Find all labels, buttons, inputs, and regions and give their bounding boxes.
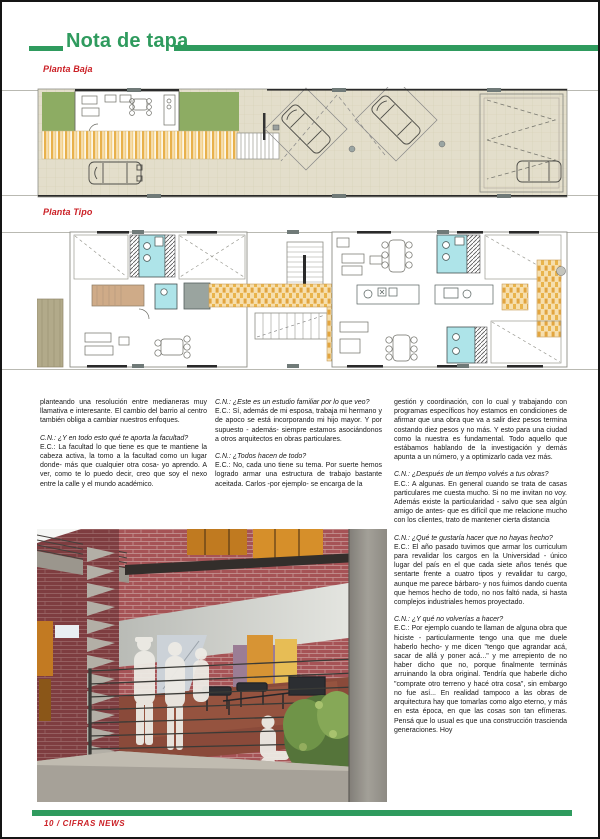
footer-rule	[32, 810, 572, 816]
planta-baja-drawing	[37, 87, 569, 200]
interview-answer: E.C.: Por ejemplo cuando te llaman de al…	[394, 624, 567, 734]
interview-question: C.N.: ¿Todos hacen de todo?	[215, 452, 382, 461]
interview-answer: gestión y coordinación, con lo cual y tr…	[394, 398, 567, 462]
interview-answer: E.C.: No, cada uno tiene su tema. Por su…	[215, 461, 382, 489]
interview-question: C.N.: ¿Y en todo esto qué te aporta la f…	[40, 434, 207, 443]
interview-question: C.N.: ¿Este es un estudio familiar por l…	[215, 398, 382, 407]
planta-tipo-drawing	[37, 227, 569, 374]
magazine-page: Nota de tapa Planta Baja	[0, 0, 600, 839]
header-rule-right	[174, 45, 600, 51]
body-paragraph: planteando una resolución entre medianer…	[40, 398, 207, 426]
courtyard-render-photo	[37, 529, 387, 802]
header-rule-left	[29, 46, 63, 51]
interview-question: C.N.: ¿Qué te gustaría hacer que no haya…	[394, 534, 567, 543]
interview-question: C.N.: ¿Después de un tiempo volvés a tus…	[394, 470, 567, 479]
page-number: 10 / CIFRAS NEWS	[44, 819, 125, 828]
text-column-1: planteando una resolución entre medianer…	[40, 398, 207, 489]
section-title: Nota de tapa	[66, 30, 188, 53]
interview-answer: E.C.: Sí, además de mi esposa, trabaja m…	[215, 407, 382, 444]
text-column-2: C.N.: ¿Este es un estudio familiar por l…	[215, 398, 382, 489]
interview-question: C.N.: ¿Y qué no volverías a hacer?	[394, 615, 567, 624]
plan-label-planta-baja: Planta Baja	[43, 64, 93, 74]
plan-label-planta-tipo: Planta Tipo	[43, 207, 92, 217]
interview-answer: E.C.: La facultad lo que tiene es que te…	[40, 443, 207, 489]
interview-answer: E.C.: El año pasado tuvimos que armar lo…	[394, 543, 567, 607]
text-column-3: gestión y coordinación, con lo cual y tr…	[394, 398, 567, 735]
interview-answer: E.C.: A algunas. En general cuando se tr…	[394, 480, 567, 526]
